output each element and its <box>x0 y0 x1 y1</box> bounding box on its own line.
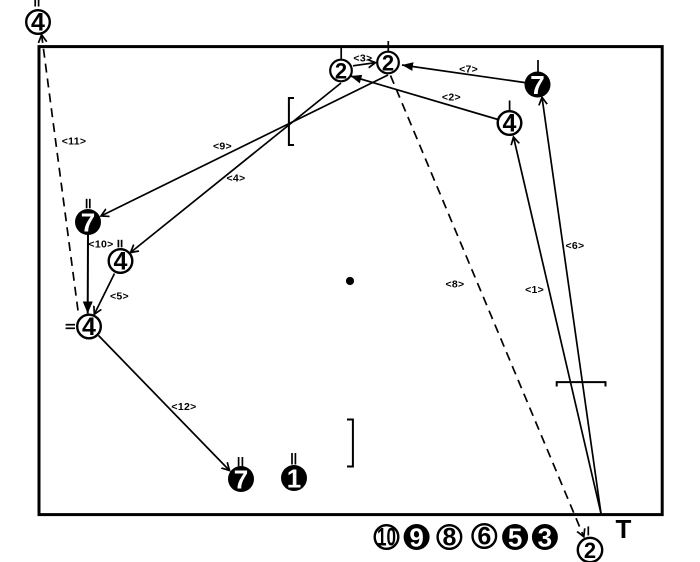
svg-text:<2>: <2> <box>442 91 461 103</box>
svg-text:4: 4 <box>31 9 45 37</box>
svg-text:<12>: <12> <box>171 401 196 413</box>
svg-text:4: 4 <box>82 313 96 341</box>
svg-text:7: 7 <box>81 207 95 237</box>
svg-text:<3>: <3> <box>353 53 372 65</box>
svg-text:8: 8 <box>442 524 456 552</box>
svg-text:<4>: <4> <box>226 172 245 184</box>
svg-text:2: 2 <box>335 59 347 84</box>
svg-text:6: 6 <box>477 523 491 551</box>
svg-text:<8>: <8> <box>445 279 464 291</box>
svg-text:2: 2 <box>584 538 596 562</box>
svg-text:9: 9 <box>409 522 423 552</box>
svg-text:<7>: <7> <box>459 63 478 75</box>
svg-text:7: 7 <box>234 464 248 494</box>
svg-text:1: 1 <box>287 463 301 493</box>
svg-text:<11>: <11> <box>62 135 87 147</box>
svg-text:<10>: <10> <box>88 239 113 251</box>
svg-text:<1>: <1> <box>525 284 544 296</box>
svg-text:4: 4 <box>114 248 128 276</box>
svg-text:2: 2 <box>382 51 394 76</box>
svg-text:5: 5 <box>508 522 522 552</box>
svg-text:4: 4 <box>503 110 517 138</box>
svg-text:<6>: <6> <box>565 240 584 252</box>
svg-text:3: 3 <box>538 522 552 552</box>
svg-text:10: 10 <box>377 524 396 552</box>
svg-text:<9>: <9> <box>213 141 232 153</box>
svg-text:T: T <box>616 514 632 544</box>
svg-text:<5>: <5> <box>110 290 129 302</box>
svg-text:7: 7 <box>530 70 544 100</box>
